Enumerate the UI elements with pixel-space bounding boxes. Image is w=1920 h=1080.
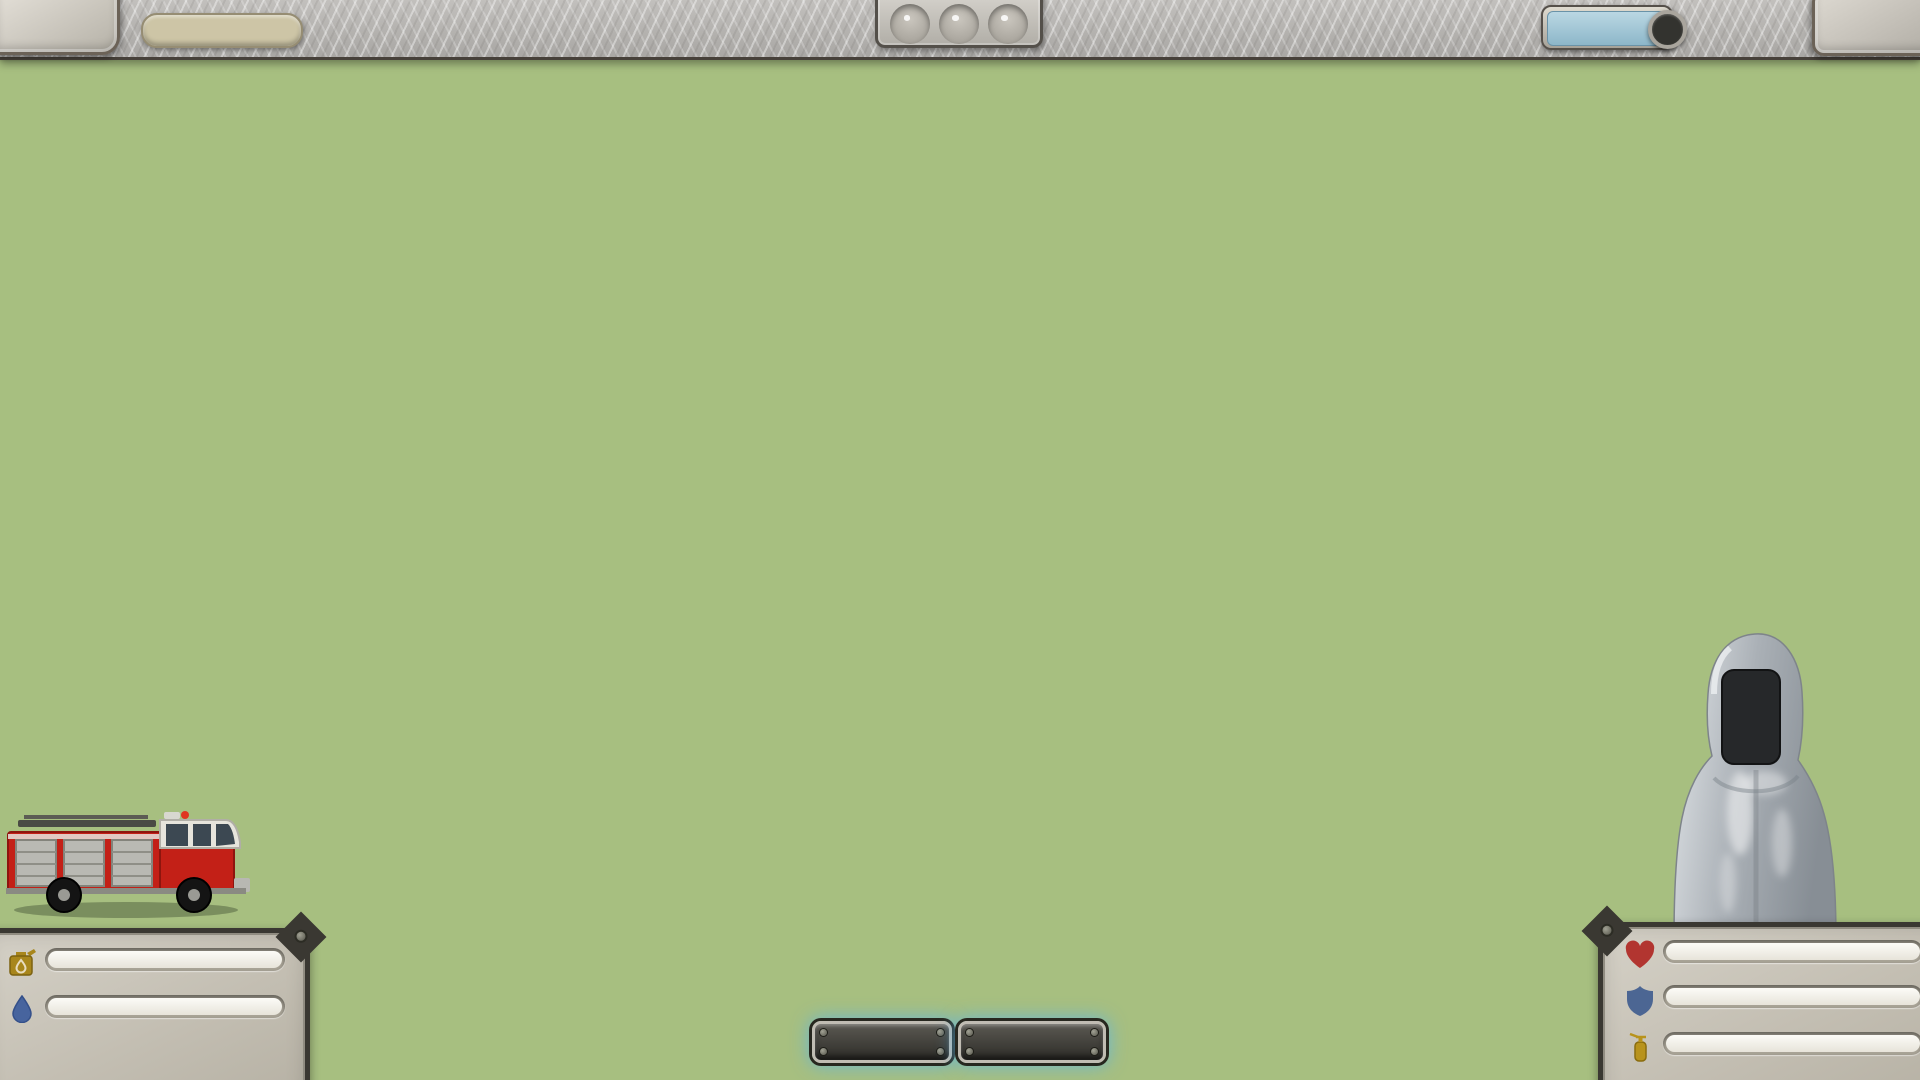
health-gauge <box>1663 940 1920 963</box>
fuel-can-icon <box>0 948 45 978</box>
status-light-2 <box>947 12 971 36</box>
resources-panel <box>0 928 310 1080</box>
evacuate-button[interactable] <box>958 1021 1106 1063</box>
fire-truck-illustration <box>4 790 254 927</box>
blueprints-button[interactable] <box>1541 5 1673 50</box>
extinguisher-icon <box>1617 1032 1663 1064</box>
firefighter-statue <box>1670 628 1842 945</box>
stats-panel <box>1598 922 1920 1080</box>
status-light-3 <box>996 12 1020 36</box>
status-light-1 <box>898 12 922 36</box>
top-bar <box>0 0 1920 60</box>
water-drop-icon <box>0 995 45 1023</box>
water-gauge <box>45 995 285 1018</box>
shield-icon <box>1617 985 1663 1017</box>
fuel-gauge <box>45 948 285 971</box>
money-display <box>1812 0 1920 56</box>
heart-icon <box>1617 940 1663 970</box>
stop-button[interactable] <box>812 1021 952 1063</box>
protection-gauge <box>1663 985 1920 1008</box>
light-well <box>939 4 979 44</box>
light-well <box>890 4 930 44</box>
loop-counter <box>0 0 120 55</box>
light-well <box>988 4 1028 44</box>
blueprints-count-badge <box>1648 10 1687 49</box>
xp-bar <box>141 13 303 48</box>
extinguish-gauge <box>1663 1032 1920 1055</box>
xp-label <box>143 15 301 46</box>
traffic-lights-panel <box>875 0 1043 48</box>
game-stage <box>0 0 1920 1080</box>
